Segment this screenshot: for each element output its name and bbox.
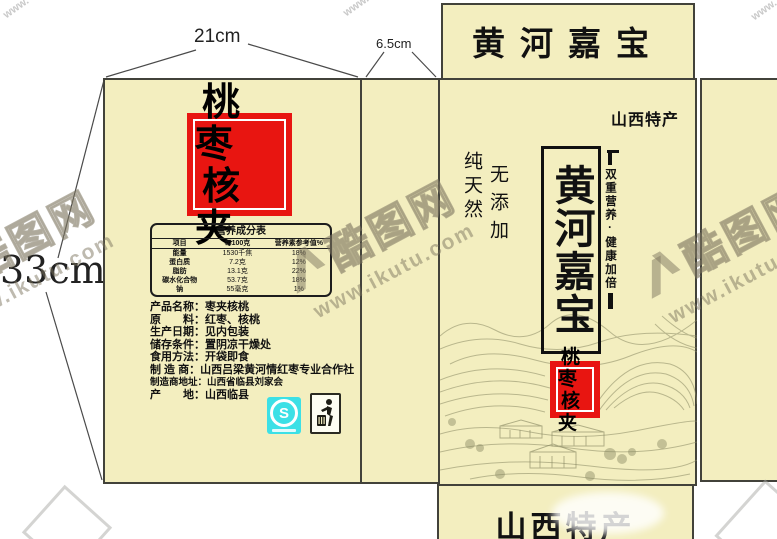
nutrition-cell: 1% [268, 285, 330, 294]
info-product-name: 产品名称：枣夹核桃 [150, 301, 365, 314]
width-dimension-label: 21cm [194, 26, 240, 48]
back-panel: 桃枣 核夹 营养成分表 项目 每100克 营养素参考值% 能量 1530千焦 1… [103, 78, 362, 484]
nutrition-header-nrv: 营养素参考值% [268, 239, 330, 248]
info-production-date: 生产日期：见内包装 [150, 326, 365, 339]
nutrition-cell: 7.2克 [207, 258, 268, 267]
info-manufacturer: 制 造 商：山西吕梁黄河情红枣专业合作社 [150, 364, 365, 377]
nutrition-cell: 12% [268, 258, 330, 267]
watermark-diamond-bottomright [714, 479, 777, 539]
slogan-text: 双重营养·健康加倍 [603, 168, 617, 290]
nutrition-cell: 55毫克 [207, 285, 268, 294]
product-seal-small: 桃枣 核夹 [550, 361, 600, 418]
top-flap-brand-title: 黄河嘉宝 [443, 17, 693, 65]
watermark-white-smudge [552, 492, 664, 534]
main-title-frame: 黄河嘉宝 [541, 146, 601, 354]
trash-person-glyph [314, 398, 338, 430]
height-dimension-label: 33cm [0, 248, 106, 292]
front-panel: 山西特产 纯天然 无添加 黄河嘉宝 双重营养·健康加倍 桃枣 核夹 [438, 78, 697, 486]
info-ingredients: 原 料：红枣、核桃 [150, 314, 365, 327]
dispose-properly-icon [310, 393, 341, 434]
qs-caption-bar [272, 429, 296, 432]
qs-certification-icon: S [267, 397, 301, 434]
nutrition-header-item: 项目 [152, 239, 207, 248]
nutrition-header-row: 项目 每100克 营养素参考值% [152, 239, 330, 249]
seal-row-2: 核夹 [558, 390, 592, 434]
slogan-bottom-bar [608, 293, 613, 309]
nutrition-cell: 22% [268, 267, 330, 276]
nutrition-cell: 18% [268, 276, 330, 285]
nutrition-cell: 1530千焦 [207, 249, 268, 258]
origin-specialty-label: 山西特产 [611, 106, 679, 130]
nutrition-cell: 钠 [152, 285, 207, 294]
top-flap-panel: 黄河嘉宝 [441, 3, 695, 80]
side-panel [360, 78, 440, 484]
flap-dimension-label: 6.5cm [376, 36, 411, 51]
product-info-block: 产品名称：枣夹核桃 原 料：红枣、核桃 生产日期：见内包装 储存条件：置阴凉干燥… [150, 301, 365, 402]
nutrition-table: 营养成分表 项目 每100克 营养素参考值% 能量 1530千焦 18% 蛋白质… [150, 223, 332, 297]
nutrition-cell: 13.1克 [207, 267, 268, 276]
packaging-dieline-canvas: 21cm 6.5cm 33cm 黄河嘉宝 桃枣 核夹 营养成分表 项目 每100… [0, 0, 777, 539]
nutrition-table-title: 营养成分表 [152, 225, 330, 239]
main-brand-title: 黄河嘉宝 [545, 164, 597, 336]
no-additive-vertical-text: 无添加 [486, 164, 510, 248]
glue-strip-panel [700, 78, 777, 482]
slogan-column: 双重营养·健康加倍 [603, 150, 617, 357]
nutrition-row-fat: 脂肪 13.1克 22% [152, 267, 330, 276]
seal-row-1: 桃枣 [195, 81, 284, 165]
info-usage: 食用方法：开袋即食 [150, 351, 365, 364]
slogan-top-bar [608, 153, 612, 165]
nutrition-cell: 18% [268, 249, 330, 258]
seal-row-1: 桃枣 [558, 346, 592, 390]
nutrition-cell: 脂肪 [152, 267, 207, 276]
nutrition-cell: 53.7克 [207, 276, 268, 285]
nutrition-row-carbs: 碳水化合物 53.7克 18% [152, 276, 330, 285]
nutrition-cell: 碳水化合物 [152, 276, 207, 285]
info-manufacturer-address: 制造商地址：山西省临县刘家会 [150, 377, 365, 390]
qs-letter: S [279, 406, 289, 421]
nutrition-cell: 蛋白质 [152, 258, 207, 267]
nutrition-row-protein: 蛋白质 7.2克 12% [152, 258, 330, 267]
nutrition-header-per100g: 每100克 [207, 239, 268, 248]
nutrition-row-energy: 能量 1530千焦 18% [152, 249, 330, 258]
watermark-www-topmid: www. [341, 0, 371, 19]
watermark-diamond-bottomleft [22, 485, 112, 539]
watermark-www-topleft: www. [1, 0, 31, 21]
pure-natural-vertical-text: 纯天然 [460, 151, 484, 223]
watermark-www-topright: www. [749, 0, 777, 23]
nutrition-row-sodium: 钠 55毫克 1% [152, 285, 330, 294]
product-seal-large: 桃枣 核夹 [187, 113, 292, 216]
info-storage: 储存条件：置阴凉干燥处 [150, 339, 365, 352]
nutrition-cell: 能量 [152, 249, 207, 258]
